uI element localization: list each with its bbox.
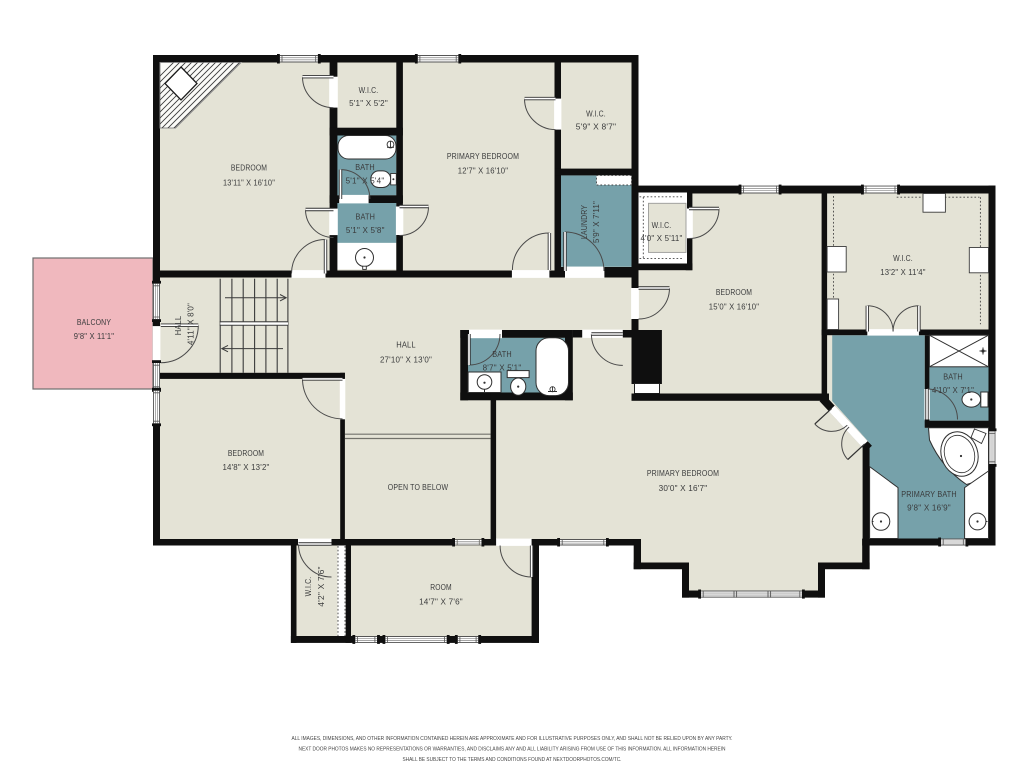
svg-text:15'0" X 16'10": 15'0" X 16'10" [709, 303, 759, 312]
svg-text:W.I.C.: W.I.C. [586, 109, 606, 119]
svg-text:8'7" X 5'1": 8'7" X 5'1" [483, 364, 522, 373]
svg-text:W.I.C.: W.I.C. [893, 253, 913, 263]
svg-text:13'11" X 16'10": 13'11" X 16'10" [223, 179, 275, 188]
svg-text:BATH: BATH [943, 372, 963, 382]
svg-text:HALL: HALL [173, 316, 183, 336]
svg-text:W.I.C.: W.I.C. [652, 220, 672, 230]
svg-text:SHALL BE SUBJECT TO THE TERMS: SHALL BE SUBJECT TO THE TERMS AND CONDIT… [403, 757, 622, 763]
svg-text:BEDROOM: BEDROOM [228, 448, 264, 458]
svg-text:BATH: BATH [492, 349, 512, 359]
svg-text:4'0" X 5'11": 4'0" X 5'11" [640, 234, 682, 243]
svg-text:4'2" X 7'6": 4'2" X 7'6" [317, 566, 326, 607]
svg-text:ALL IMAGES, DIMENSIONS, AND OT: ALL IMAGES, DIMENSIONS, AND OTHER INFORM… [292, 736, 733, 742]
svg-text:PRIMARY BEDROOM: PRIMARY BEDROOM [447, 151, 519, 161]
svg-text:PRIMARY BEDROOM: PRIMARY BEDROOM [647, 468, 719, 478]
svg-text:27'10" X 13'0": 27'10" X 13'0" [380, 355, 432, 364]
svg-text:BEDROOM: BEDROOM [231, 163, 267, 173]
svg-text:W.I.C.: W.I.C. [303, 577, 313, 597]
svg-text:9'8" X 16'9": 9'8" X 16'9" [907, 504, 951, 513]
svg-text:BATH: BATH [355, 162, 375, 172]
svg-text:PRIMARY BATH: PRIMARY BATH [901, 489, 957, 499]
svg-text:5'9" X 7'11": 5'9" X 7'11" [592, 201, 601, 243]
svg-text:13'2" X 11'4": 13'2" X 11'4" [880, 268, 925, 277]
svg-text:9'8" X 11'1": 9'8" X 11'1" [74, 332, 114, 341]
svg-text:14'8" X 13'2": 14'8" X 13'2" [222, 463, 269, 472]
svg-text:5'1" X 5'4": 5'1" X 5'4" [346, 177, 385, 186]
svg-text:30'0" X 16'7": 30'0" X 16'7" [659, 484, 708, 493]
svg-text:BALCONY: BALCONY [77, 317, 111, 327]
svg-text:ROOM: ROOM [430, 582, 452, 592]
svg-text:W.I.C.: W.I.C. [359, 85, 379, 95]
svg-text:14'7" X 7'6": 14'7" X 7'6" [419, 598, 463, 607]
svg-text:12'7" X 16'10": 12'7" X 16'10" [458, 167, 508, 176]
svg-text:OPEN TO BELOW: OPEN TO BELOW [388, 482, 449, 492]
svg-text:5'1" X 5'8": 5'1" X 5'8" [346, 226, 385, 235]
svg-text:5'9" X 8'7": 5'9" X 8'7" [576, 123, 617, 132]
svg-text:BATH: BATH [356, 211, 376, 221]
svg-text:LAUNDRY: LAUNDRY [579, 205, 589, 239]
svg-text:5'1" X 5'2": 5'1" X 5'2" [349, 99, 388, 108]
svg-text:HALL: HALL [396, 340, 416, 350]
svg-text:BEDROOM: BEDROOM [716, 287, 752, 297]
svg-text:4'11" X 8'0": 4'11" X 8'0" [187, 303, 196, 345]
svg-text:4'10" X 7'1": 4'10" X 7'1" [932, 386, 974, 395]
svg-text:NEXT DOOR PHOTOS MAKES NO REPR: NEXT DOOR PHOTOS MAKES NO REPRESENTATION… [299, 747, 726, 753]
